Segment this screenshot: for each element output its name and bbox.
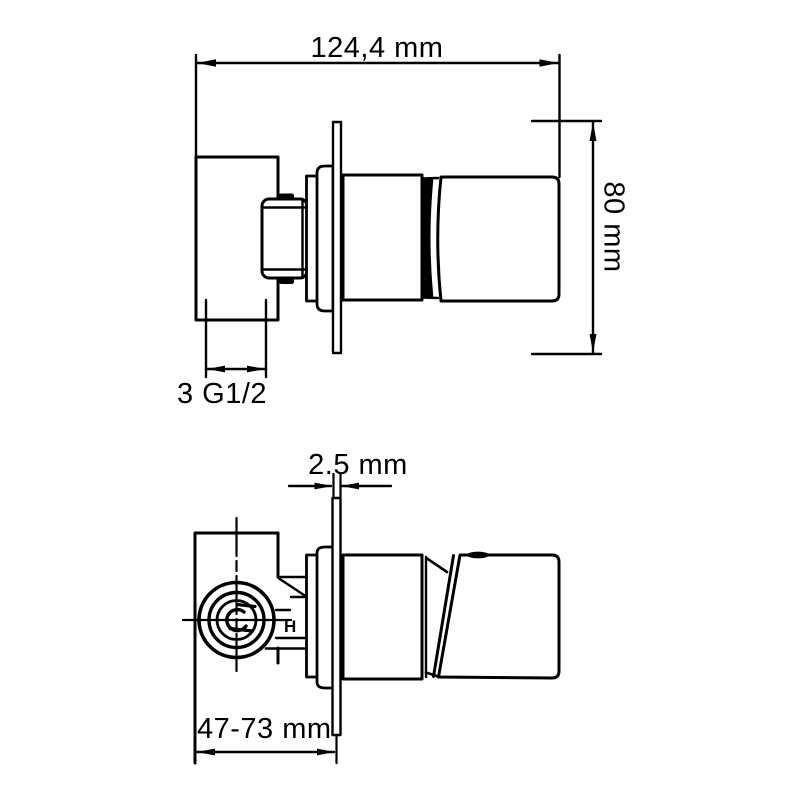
- flange-plate-plan: [333, 498, 341, 735]
- arrowhead-left: [197, 749, 216, 756]
- knob-top-detail: [467, 552, 489, 559]
- side-view-linework: [196, 55, 601, 377]
- thread-connector-side: [262, 194, 307, 285]
- arrowhead-right: [540, 59, 559, 67]
- escutcheon-side: [343, 175, 422, 300]
- dim-label-thread-size: 3 G1/2: [177, 380, 267, 409]
- dim-label-overall-width: 124,4 mm: [311, 34, 444, 63]
- stem-cap-side: [317, 166, 333, 311]
- handle-cone-side: [421, 180, 432, 296]
- arrowhead-right: [247, 366, 265, 373]
- arrowhead-right: [315, 483, 333, 490]
- arrowhead-left: [197, 59, 216, 67]
- handle-knob-side: [438, 177, 559, 301]
- arrowhead-down: [590, 334, 597, 353]
- dim-label-flange-thickness: 2.5 mm: [308, 451, 408, 480]
- technical-drawing-canvas: 124,4 mm 80 mm 3 G1/2 2.5 mm 47-73 mm H: [0, 0, 800, 800]
- flange-plate-side: [333, 122, 341, 353]
- arrowhead-right: [317, 749, 335, 756]
- dim-label-depth-range: 47-73 mm: [197, 715, 332, 744]
- h-mark-label: H: [284, 618, 296, 635]
- dim-label-flange-height: 80 mm: [599, 181, 628, 272]
- handle-knob-plan: [439, 555, 560, 678]
- drawing-linework: [0, 0, 800, 800]
- arrowhead-left: [341, 483, 359, 490]
- arrowhead-up: [590, 122, 597, 141]
- escutcheon-plan: [343, 555, 422, 679]
- stem-cap-plan: [317, 547, 333, 688]
- arrowhead-left: [207, 366, 225, 373]
